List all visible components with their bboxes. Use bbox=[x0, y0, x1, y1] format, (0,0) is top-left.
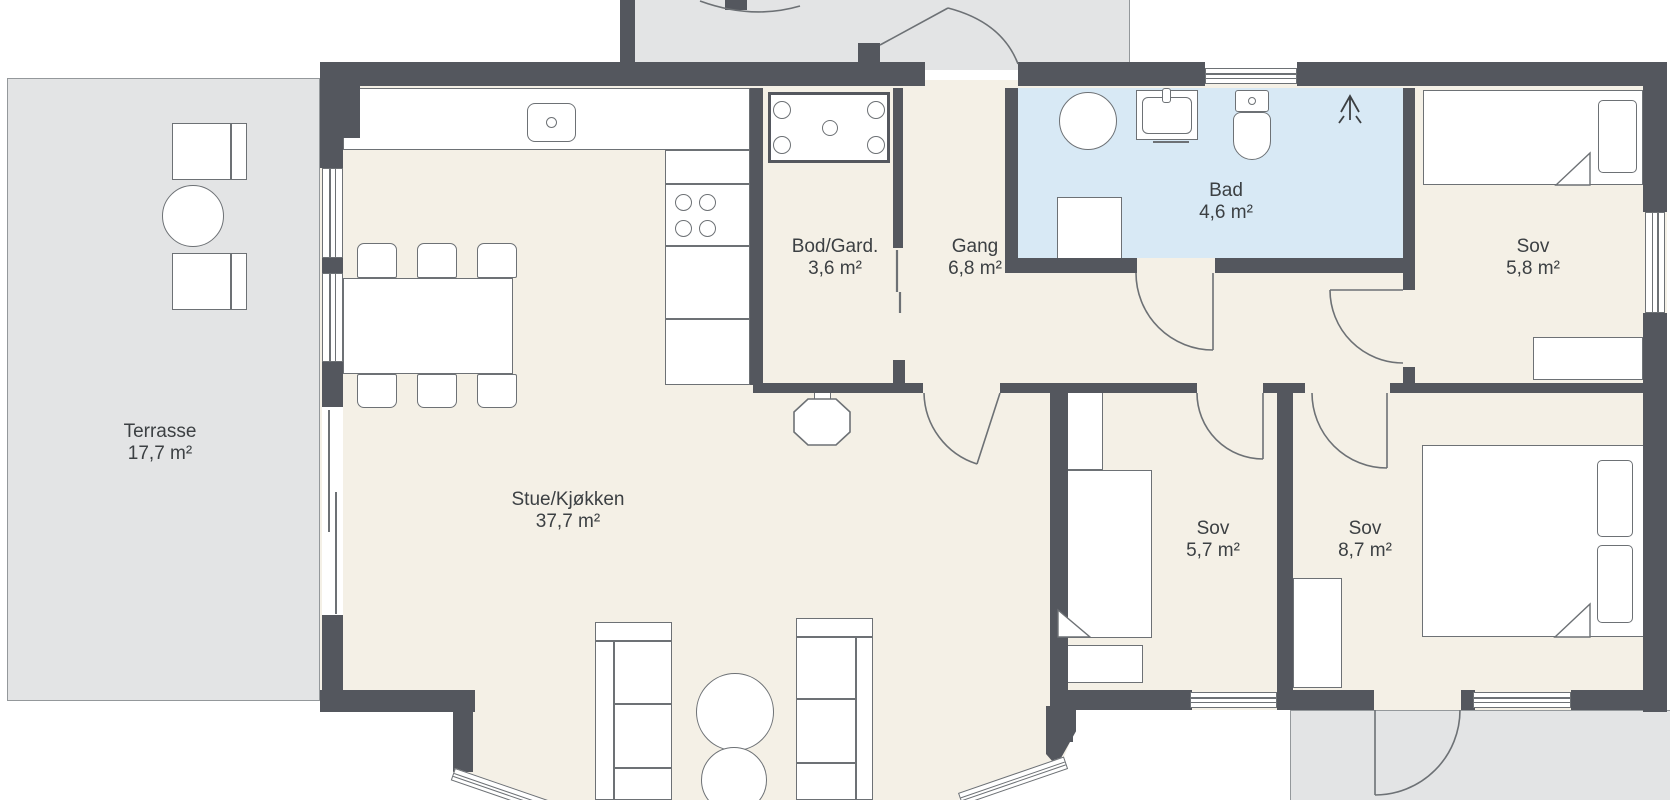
furniture-line bbox=[855, 636, 857, 800]
kitchen-counter-column bbox=[665, 150, 750, 385]
appliance-burner bbox=[867, 136, 885, 154]
toilet-bowl bbox=[1233, 112, 1271, 160]
furniture-line bbox=[614, 767, 672, 769]
cooktop-burner bbox=[699, 220, 716, 237]
wall-segment bbox=[750, 88, 763, 385]
terrace-deck bbox=[7, 78, 320, 701]
window-glass-line bbox=[1474, 697, 1570, 699]
wall-segment bbox=[858, 43, 880, 70]
wall-segment bbox=[1215, 258, 1403, 273]
sink-drain bbox=[546, 117, 557, 128]
furniture-line bbox=[797, 698, 855, 700]
room-name: Stue/Kjøkken bbox=[512, 489, 625, 511]
room-label-bod-gard: Bod/Gard.3,6 m² bbox=[792, 236, 879, 280]
bed-bench bbox=[1067, 645, 1143, 683]
pillow bbox=[1597, 545, 1633, 623]
room-name: Gang bbox=[948, 236, 1002, 258]
furniture-line bbox=[797, 762, 855, 764]
bathroom-cabinet bbox=[1057, 197, 1122, 259]
window bbox=[1190, 692, 1277, 708]
room-name: Sov bbox=[1506, 236, 1560, 258]
room-area: 4,6 m² bbox=[1199, 202, 1253, 224]
room-area: 6,8 m² bbox=[948, 258, 1002, 280]
wall-segment bbox=[620, 0, 635, 70]
window bbox=[322, 273, 343, 362]
wall-segment bbox=[322, 362, 343, 407]
furniture-line bbox=[796, 636, 873, 638]
wall-segment bbox=[893, 88, 903, 248]
window bbox=[1205, 68, 1297, 84]
window-glass-line bbox=[1191, 702, 1276, 704]
wall-segment bbox=[320, 690, 475, 712]
room-name: Sov bbox=[1186, 518, 1240, 540]
wall-segment bbox=[1277, 393, 1293, 693]
furniture-line bbox=[665, 318, 750, 320]
furniture-line bbox=[230, 253, 232, 310]
wardrobe bbox=[1293, 578, 1342, 688]
wall-segment bbox=[1005, 88, 1018, 260]
window-glass-line bbox=[335, 274, 337, 361]
appliance-knob bbox=[822, 120, 838, 136]
window-glass-line bbox=[329, 274, 331, 361]
room-label-sov-1: Sov5,8 m² bbox=[1506, 236, 1560, 280]
furniture-line bbox=[595, 640, 672, 642]
wall-segment bbox=[1263, 383, 1305, 393]
furniture-line bbox=[230, 123, 232, 180]
room-area: 3,6 m² bbox=[792, 258, 879, 280]
wall-segment bbox=[1390, 383, 1645, 393]
window-glass-line bbox=[1657, 213, 1659, 312]
appliance-burner bbox=[773, 101, 791, 119]
dining-chair bbox=[477, 374, 517, 408]
terrace-table bbox=[162, 185, 224, 247]
coffee-table bbox=[696, 673, 774, 751]
wall-segment bbox=[1643, 313, 1667, 712]
wall-segment bbox=[753, 383, 923, 393]
wall-segment bbox=[1403, 88, 1415, 290]
room-name: Bad bbox=[1199, 180, 1253, 202]
cooktop-burner bbox=[675, 220, 692, 237]
sliding-door-panel bbox=[335, 492, 337, 614]
pillow bbox=[1597, 460, 1633, 537]
room-label-gang: Gang6,8 m² bbox=[948, 236, 1002, 280]
toilet-flush-button bbox=[1248, 97, 1256, 105]
terrace-chair bbox=[172, 123, 247, 180]
dresser bbox=[1533, 337, 1643, 380]
sofa bbox=[595, 622, 672, 800]
wall-segment bbox=[1277, 690, 1374, 710]
wall-segment bbox=[453, 690, 473, 772]
furniture-line bbox=[1153, 141, 1189, 143]
window-glass-line bbox=[329, 169, 331, 257]
room-area: 5,7 m² bbox=[1186, 540, 1240, 562]
room-label-sov-2: Sov5,7 m² bbox=[1186, 518, 1240, 562]
dining-chair bbox=[357, 243, 397, 278]
wall-segment bbox=[322, 615, 343, 692]
wall-segment bbox=[320, 88, 343, 168]
window-glass-line bbox=[1652, 213, 1654, 312]
window bbox=[322, 168, 343, 258]
room-area: 8,7 m² bbox=[1338, 540, 1392, 562]
window-glass-line bbox=[335, 169, 337, 257]
dining-table bbox=[343, 278, 513, 374]
wall-segment bbox=[322, 258, 343, 273]
room-label-terrasse: Terrasse17,7 m² bbox=[124, 421, 197, 465]
furniture-line bbox=[665, 245, 750, 247]
room-area: 37,7 m² bbox=[512, 511, 625, 533]
dining-chair bbox=[417, 374, 457, 408]
washing-machine bbox=[1059, 92, 1117, 150]
room-name: Sov bbox=[1338, 518, 1392, 540]
bed-single bbox=[1058, 470, 1152, 638]
appliance-burner bbox=[773, 136, 791, 154]
window bbox=[1473, 692, 1571, 708]
wall-segment bbox=[1018, 62, 1205, 86]
room-label-sov-3: Sov8,7 m² bbox=[1338, 518, 1392, 562]
furniture-line bbox=[614, 703, 672, 705]
floor-plan: Terrasse17,7 m²Stue/Kjøkken37,7 m²Bod/Ga… bbox=[0, 0, 1670, 800]
room-label-stue-kjokken: Stue/Kjøkken37,7 m² bbox=[512, 489, 625, 533]
wall-segment bbox=[1050, 393, 1068, 693]
room-area: 17,7 m² bbox=[124, 443, 197, 465]
room-name: Terrasse bbox=[124, 421, 197, 443]
appliance-burner bbox=[867, 101, 885, 119]
wall-segment bbox=[1571, 690, 1667, 710]
entrance-porch bbox=[635, 0, 1130, 70]
furniture-line bbox=[613, 640, 615, 800]
bathroom-faucet bbox=[1162, 88, 1171, 103]
window-glass-line bbox=[1474, 702, 1570, 704]
wall-segment bbox=[1643, 62, 1667, 212]
sliding-door bbox=[322, 407, 343, 615]
wall-segment bbox=[1005, 258, 1137, 273]
window bbox=[1645, 212, 1665, 313]
cooktop-burner bbox=[675, 194, 692, 211]
sliding-door-panel bbox=[328, 410, 330, 532]
room-label-bad: Bad4,6 m² bbox=[1199, 180, 1253, 224]
terrace-chair bbox=[172, 253, 247, 310]
furniture-line bbox=[665, 183, 750, 185]
window-glass-line bbox=[1191, 697, 1276, 699]
sofa bbox=[796, 618, 873, 800]
room-name: Bod/Gard. bbox=[792, 236, 879, 258]
window-glass-line bbox=[1206, 73, 1296, 75]
dining-chair bbox=[357, 374, 397, 408]
cooktop-burner bbox=[699, 194, 716, 211]
wall-segment bbox=[1403, 367, 1415, 393]
dining-chair bbox=[417, 243, 457, 278]
dining-chair bbox=[477, 243, 517, 278]
wall-segment bbox=[1297, 62, 1667, 86]
pillow bbox=[1598, 100, 1637, 173]
window-glass-line bbox=[1206, 78, 1296, 80]
room-area: 5,8 m² bbox=[1506, 258, 1560, 280]
wall-segment bbox=[1000, 383, 1197, 393]
wall-segment bbox=[725, 0, 747, 10]
stove-chimney bbox=[814, 392, 831, 401]
back-terrace bbox=[1290, 710, 1670, 800]
